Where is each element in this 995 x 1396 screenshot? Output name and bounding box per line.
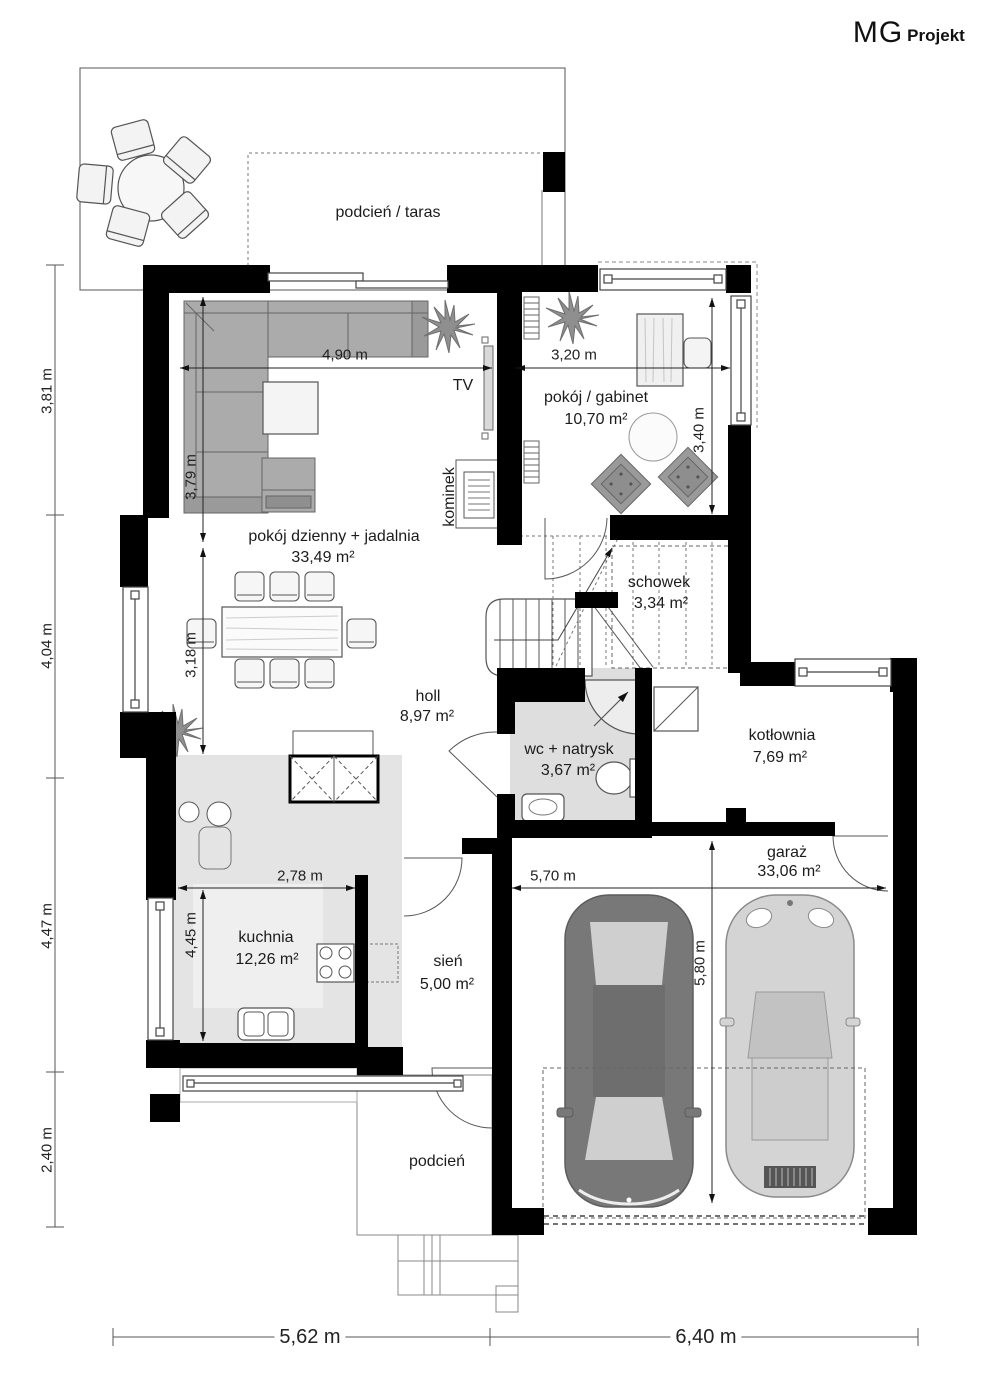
car-light [720,895,860,1197]
room-area-sien: 5,00 m² [420,977,474,993]
fixture-label-tv: TV [453,378,473,394]
garage-door [544,1216,868,1224]
dim-left-3: 4,47 m [40,898,55,954]
gabinet-armchair [591,454,650,513]
car-dark [557,895,701,1207]
sliding-door [268,273,448,288]
dim-left-4: 2,40 m [40,1122,55,1178]
dining-set [187,572,376,688]
logo-projekt: Projekt [907,26,965,46]
dim-bottom-2: 6,40 m [670,1327,741,1347]
room-label-taras: podcień / taras [336,205,441,221]
room-label-podcien: podcień [409,1154,465,1170]
room-area-kuchnia: 12,26 m² [235,952,298,968]
desk [637,314,711,386]
porch-outlines [180,1068,518,1312]
terrace-furniture [76,119,212,248]
room-area-wc: 3,67 m² [541,763,595,779]
dim-kuchnia-height: 4,45 m [184,912,199,958]
dim-gabinet-height: 3,40 m [692,407,707,453]
room-area-garaz: 33,06 m² [757,864,820,880]
dim-bottom-1: 5,62 m [274,1327,345,1347]
room-label-holl: holl [416,689,441,705]
coffee-table [263,382,318,434]
room-label-kuchnia: kuchnia [238,930,293,946]
dim-living-width: 4,90 m [322,348,368,363]
fixture-label-kominek: kominek [442,467,458,527]
fireplace [456,460,502,528]
room-area-kotlownia: 7,69 m² [753,750,807,766]
rug [629,413,677,461]
kitchen-sink [238,1008,294,1040]
room-label-dzienny: pokój dzienny + jadalnia [248,529,419,545]
plant-icon [422,300,475,353]
dim-kuchnia-width: 2,78 m [277,869,323,884]
plant-icon [546,291,599,344]
hatch-strips [524,297,539,483]
dim-left-2: 4,04 m [40,618,55,674]
armchair [262,458,315,512]
room-label-schowek: schowek [628,575,690,591]
stove [317,944,354,982]
dim-living-upper: 3,79 m [184,454,199,500]
room-label-garaz: garaż [767,845,807,861]
room-area-gabinet: 10,70 m² [564,412,627,428]
room-area-holl: 8,97 m² [400,709,454,725]
room-label-sien: sień [433,954,462,970]
room-label-kotlownia: kotłownia [749,728,816,744]
sink [522,794,564,821]
boiler [654,687,698,731]
logo-mg: MG [853,16,903,50]
room-label-gabinet: pokój / gabinet [544,390,648,406]
room-area-dzienny: 33,49 m² [291,550,354,566]
room-area-schowek: 3,34 m² [634,596,688,612]
dim-garaz-width: 5,70 m [530,869,576,884]
floorplan-drawing [0,0,995,1396]
dim-garaz-height: 5,80 m [693,940,708,986]
dim-left-1: 3,81 m [40,363,55,419]
tv-set [482,337,493,439]
dim-living-lower: 3,18 m [184,632,199,678]
room-label-wc: wc + natrysk [524,742,613,758]
dim-gabinet-width: 3,20 m [551,348,597,363]
floorplan-page: MG Projekt podcień / taras pokój / gabin… [0,0,995,1396]
